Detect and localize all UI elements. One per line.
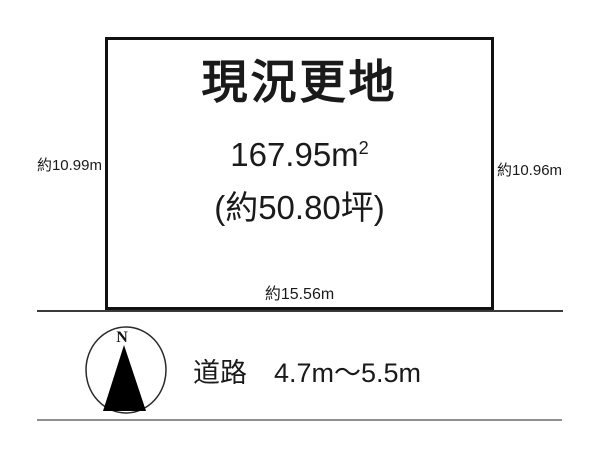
plot-area-value: 167.95m (230, 136, 358, 173)
compass-needle (103, 345, 146, 411)
plot-area-m2: 167.95m2 (108, 136, 491, 174)
dimension-label-right: 約10.96m (497, 161, 562, 181)
road-edge-line-top (37, 310, 563, 312)
plot-title: 現況更地 (108, 46, 491, 112)
dimension-label-left: 約10.99m (0, 156, 102, 176)
road-edge-line-bottom (37, 419, 562, 421)
land-plot-outline: 現況更地 167.95m2 (約50.80坪) 約15.56m (105, 37, 494, 310)
land-plot-diagram: 現況更地 167.95m2 (約50.80坪) 約15.56m 約10.99m … (0, 0, 600, 458)
north-arrow-icon: N (84, 325, 168, 415)
plot-area-tsubo: (約50.80坪) (108, 181, 491, 229)
plot-area-superscript: 2 (359, 138, 369, 158)
compass-north-label: N (116, 329, 128, 346)
dimension-label-bottom: 約15.56m (108, 285, 491, 305)
road-label: 道路 4.7m～5.5m (193, 351, 421, 390)
